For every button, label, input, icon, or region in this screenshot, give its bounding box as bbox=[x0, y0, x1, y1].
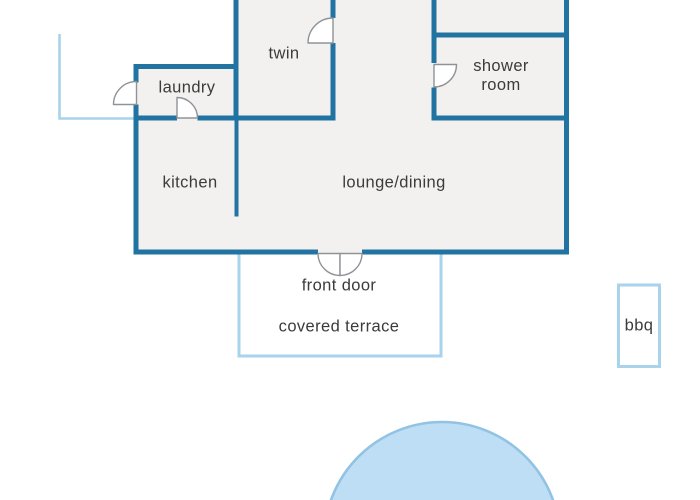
wall-left-lower bbox=[134, 105, 139, 255]
wall-bottom-b bbox=[362, 250, 569, 255]
neighbor-structure-outline bbox=[60, 34, 135, 119]
wall-shower-bottom bbox=[432, 116, 570, 121]
wall-twin-left bbox=[234, 0, 239, 121]
room-label-kitchen: kitchen bbox=[162, 174, 217, 193]
label-front-door: front door bbox=[302, 277, 377, 296]
room-label-laundry: laundry bbox=[159, 79, 216, 98]
pool-circle bbox=[324, 422, 560, 500]
wall-mid-horizontal-b bbox=[198, 116, 336, 121]
label-covered-terrace: covered terrace bbox=[279, 318, 400, 337]
building-footprint bbox=[134, 0, 570, 255]
wall-bottom-a bbox=[134, 250, 319, 255]
door-laundry-exterior bbox=[114, 82, 137, 105]
wall-shower-left-upper bbox=[432, 0, 437, 63]
wall-topright-horizontal bbox=[432, 33, 570, 38]
room-label-shower-room: shower room bbox=[458, 57, 544, 95]
wall-mid-horizontal-a bbox=[134, 116, 178, 121]
wall-twin-right-lower bbox=[331, 43, 336, 121]
wall-kitchen-divider bbox=[235, 121, 239, 217]
wall-laundry-top bbox=[134, 64, 239, 69]
wall-right-exterior bbox=[564, 0, 569, 255]
floor-plan-canvas: twin laundry shower room kitchen lounge/… bbox=[0, 0, 700, 500]
floor-plan-drawing bbox=[0, 0, 700, 500]
label-bbq: bbq bbox=[625, 317, 654, 336]
room-label-twin: twin bbox=[269, 45, 300, 64]
wall-left-upper bbox=[134, 64, 139, 83]
room-label-lounge-dining: lounge/dining bbox=[342, 174, 445, 193]
wall-twin-right-upper bbox=[331, 0, 336, 18]
